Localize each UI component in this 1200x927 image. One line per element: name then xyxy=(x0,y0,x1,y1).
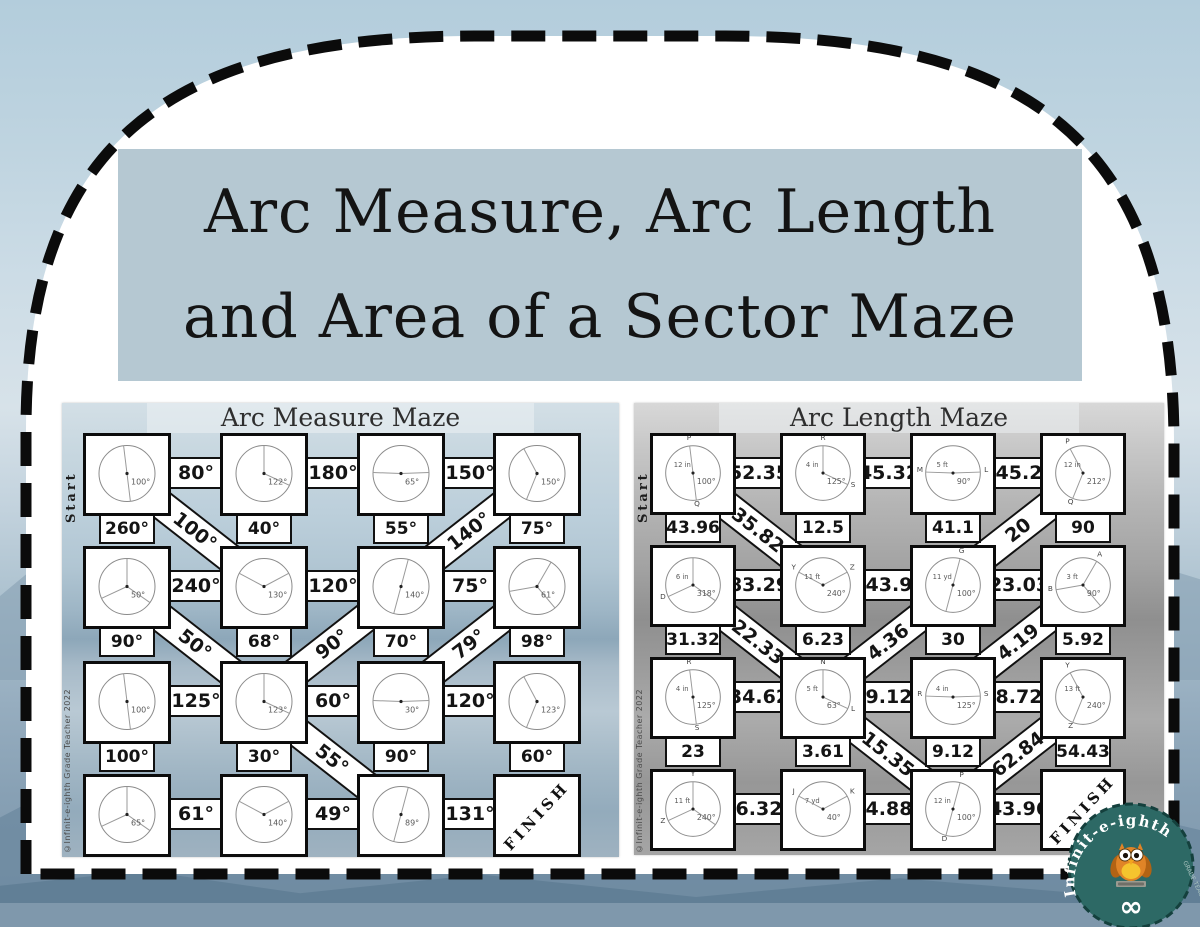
copyright-text: ©Infinit-e-ighth Grade Teacher 2022 xyxy=(63,578,72,853)
circle-diagram: 150° xyxy=(496,436,578,513)
svg-text:240°: 240° xyxy=(697,813,716,822)
product-title-line1: Arc Measure, Arc Length xyxy=(204,160,996,265)
svg-text:Z: Z xyxy=(850,562,855,571)
maze-title: Arc Length Maze xyxy=(634,403,1164,432)
svg-text:150°: 150° xyxy=(541,478,560,487)
start-label: Start xyxy=(64,427,79,523)
circle-problem-box: RS4 in125° xyxy=(910,657,996,739)
vertical-connector: 75° xyxy=(509,514,565,544)
svg-text:S: S xyxy=(851,480,856,489)
circle-diagram: 130° xyxy=(223,549,305,626)
svg-text:M: M xyxy=(917,465,923,474)
arc-length-maze-sheet: Arc Length Maze Start ©Infinit-e-ighth G… xyxy=(634,403,1164,855)
product-title-box: Arc Measure, Arc Length and Area of a Se… xyxy=(118,149,1082,381)
svg-text:R: R xyxy=(686,660,691,666)
svg-text:90°: 90° xyxy=(957,477,971,486)
horizontal-connector: 240° xyxy=(167,570,225,602)
svg-text:A: A xyxy=(1097,549,1102,558)
vertical-connector: 31.32 xyxy=(665,625,721,655)
circle-problem-box: ML5 ft90° xyxy=(910,433,996,515)
svg-text:3 ft: 3 ft xyxy=(1067,573,1079,581)
vertical-connector: 30° xyxy=(236,742,292,772)
circle-problem-box: PQ12 in100° xyxy=(650,433,736,515)
svg-text:5 ft: 5 ft xyxy=(807,685,819,693)
svg-text:D: D xyxy=(660,592,666,601)
circle-diagram: 65° xyxy=(86,777,168,854)
vertical-connector: 70° xyxy=(373,627,429,657)
horizontal-connector: 34.62 xyxy=(732,681,786,713)
circle-diagram: YZ11 ft240° xyxy=(653,772,733,848)
horizontal-connector: 120° xyxy=(304,570,362,602)
circle-problem-box: 100° xyxy=(83,433,171,516)
svg-text:61°: 61° xyxy=(541,591,555,600)
vertical-connector: 40° xyxy=(236,514,292,544)
svg-text:11 ft: 11 ft xyxy=(674,797,690,805)
vertical-connector: 12.5 xyxy=(795,513,851,543)
circle-diagram: NL5 ft63° xyxy=(783,660,863,736)
svg-text:S: S xyxy=(984,689,989,698)
circle-diagram: ML5 ft90° xyxy=(913,436,993,512)
svg-text:90°: 90° xyxy=(1087,589,1101,598)
svg-text:40°: 40° xyxy=(827,813,841,822)
circle-diagram: PD12 in100° xyxy=(913,772,993,848)
infinity-symbol: ∞ xyxy=(1119,890,1142,923)
circle-problem-box: RS4 in125° xyxy=(780,433,866,515)
svg-text:11 ft: 11 ft xyxy=(804,573,820,581)
svg-text:13 ft: 13 ft xyxy=(1064,685,1080,693)
svg-text:50°: 50° xyxy=(131,591,145,600)
circle-problem-box: PQ12 in212° xyxy=(1040,433,1126,515)
svg-text:240°: 240° xyxy=(827,589,846,598)
circle-problem-box: 123° xyxy=(220,661,308,744)
svg-text:89°: 89° xyxy=(405,819,419,828)
svg-text:4 in: 4 in xyxy=(936,685,949,693)
horizontal-connector: 8.72 xyxy=(992,681,1046,713)
circle-problem-box: 130° xyxy=(220,546,308,629)
circle-diagram: RS4 in125° xyxy=(653,660,733,736)
copyright-text: ©Infinit-e-ighth Grade Teacher 2022 xyxy=(635,578,644,853)
svg-text:100°: 100° xyxy=(131,706,150,715)
svg-text:240°: 240° xyxy=(1087,701,1106,710)
horizontal-connector: 45.2 xyxy=(992,457,1046,489)
svg-text:65°: 65° xyxy=(131,819,145,828)
circle-diagram: G11 yd100° xyxy=(913,548,993,624)
svg-text:140°: 140° xyxy=(268,819,287,828)
circle-diagram: 89° xyxy=(360,777,442,854)
circle-problem-box: YZ11 ft240° xyxy=(650,769,736,851)
svg-text:J: J xyxy=(792,786,795,795)
svg-text:P: P xyxy=(687,436,692,442)
horizontal-connector: 43.96 xyxy=(992,793,1046,825)
svg-text:100°: 100° xyxy=(957,589,976,598)
circle-diagram: 100° xyxy=(86,664,168,741)
svg-text:140°: 140° xyxy=(405,591,424,600)
horizontal-connector: 75° xyxy=(441,570,499,602)
horizontal-connector: 43.9 xyxy=(862,569,916,601)
svg-text:318°: 318° xyxy=(697,589,716,598)
vertical-connector: 55° xyxy=(373,514,429,544)
circle-diagram: 140° xyxy=(360,549,442,626)
circle-problem-box: JK7 yd40° xyxy=(780,769,866,851)
circle-diagram: 123° xyxy=(496,664,578,741)
circle-problem-box: YZ11 ft240° xyxy=(780,545,866,627)
svg-text:100°: 100° xyxy=(131,478,150,487)
circle-problem-box: 61° xyxy=(493,546,581,629)
svg-text:Z: Z xyxy=(660,816,665,825)
vertical-connector: 100° xyxy=(99,742,155,772)
vertical-connector: 90° xyxy=(99,627,155,657)
circle-diagram: PQ12 in100° xyxy=(653,436,733,512)
circle-problem-box: 30° xyxy=(357,661,445,744)
svg-text:125°: 125° xyxy=(697,701,716,710)
circle-problem-box: PD12 in100° xyxy=(910,769,996,851)
horizontal-connector: 131° xyxy=(441,798,499,830)
svg-text:30°: 30° xyxy=(405,706,419,715)
circle-problem-box: YZ13 ft240° xyxy=(1040,657,1126,739)
horizontal-connector: 9.12 xyxy=(862,681,916,713)
horizontal-connector: 6.32 xyxy=(732,793,786,825)
circle-diagram: 61° xyxy=(496,549,578,626)
vertical-connector: 9.12 xyxy=(925,737,981,767)
circle-problem-box: 140° xyxy=(220,774,308,857)
svg-text:R: R xyxy=(820,436,825,442)
svg-text:6 in: 6 in xyxy=(676,573,689,581)
circle-problem-box: 123° xyxy=(493,661,581,744)
circle-problem-box: AB3 ft90° xyxy=(1040,545,1126,627)
svg-text:212°: 212° xyxy=(1087,477,1106,486)
horizontal-connector: 80° xyxy=(167,457,225,489)
svg-text:Y: Y xyxy=(1064,661,1070,670)
brand-logo: Infinit-e-ighth GRADE TEACHER ∞ xyxy=(1062,800,1200,927)
horizontal-connector: 23.03 xyxy=(992,569,1046,601)
circle-diagram: 100° xyxy=(86,436,168,513)
svg-text:12 in: 12 in xyxy=(674,461,691,469)
svg-text:Y: Y xyxy=(690,772,696,778)
vertical-connector: 98° xyxy=(509,627,565,657)
horizontal-connector: 83.29 xyxy=(732,569,786,601)
start-label: Start xyxy=(636,427,651,523)
vertical-connector: 68° xyxy=(236,627,292,657)
circle-problem-box: NL5 ft63° xyxy=(780,657,866,739)
finish-box: FINISH xyxy=(493,774,581,857)
svg-text:Y: Y xyxy=(790,562,796,571)
svg-text:4 in: 4 in xyxy=(806,461,819,469)
horizontal-connector: 4.88 xyxy=(862,793,916,825)
svg-text:P: P xyxy=(1065,437,1070,446)
circle-diagram: 140° xyxy=(223,777,305,854)
svg-text:7 yd: 7 yd xyxy=(805,797,820,805)
arc-length-maze-grid: 35.822022.334.364.1915.3562.8443.9612.54… xyxy=(634,403,1164,855)
vertical-connector: 41.1 xyxy=(925,513,981,543)
horizontal-connector: 120° xyxy=(441,685,499,717)
circle-problem-box: 65° xyxy=(357,433,445,516)
svg-text:130°: 130° xyxy=(268,591,287,600)
circle-problem-box: 122° xyxy=(220,433,308,516)
svg-text:100°: 100° xyxy=(697,477,716,486)
svg-text:N: N xyxy=(820,660,825,666)
circle-problem-box: D6 in318° xyxy=(650,545,736,627)
circle-problem-box: G11 yd100° xyxy=(910,545,996,627)
svg-text:65°: 65° xyxy=(405,478,419,487)
svg-text:Q: Q xyxy=(1068,497,1074,506)
svg-text:4 in: 4 in xyxy=(676,685,689,693)
svg-text:123°: 123° xyxy=(541,706,560,715)
circle-problem-box: 140° xyxy=(357,546,445,629)
vertical-connector: 23 xyxy=(665,737,721,767)
svg-text:123°: 123° xyxy=(268,706,287,715)
svg-text:K: K xyxy=(850,786,855,795)
vertical-connector: 30 xyxy=(925,625,981,655)
vertical-connector: 260° xyxy=(99,514,155,544)
vertical-connector: 6.23 xyxy=(795,625,851,655)
circle-problem-box: RS4 in125° xyxy=(650,657,736,739)
svg-text:L: L xyxy=(851,704,856,713)
svg-text:Z: Z xyxy=(1068,721,1073,730)
circle-diagram: RS4 in125° xyxy=(783,436,863,512)
circle-diagram: YZ13 ft240° xyxy=(1043,660,1123,736)
horizontal-connector: 52.35 xyxy=(732,457,786,489)
horizontal-connector: 60° xyxy=(304,685,362,717)
svg-text:G: G xyxy=(959,548,965,555)
svg-text:12 in: 12 in xyxy=(934,797,951,805)
vertical-connector: 43.96 xyxy=(665,513,721,543)
maze-title: Arc Measure Maze xyxy=(62,403,619,432)
horizontal-connector: 125° xyxy=(167,685,225,717)
circle-diagram: 123° xyxy=(223,664,305,741)
vertical-connector: 90° xyxy=(373,742,429,772)
circle-diagram: PQ12 in212° xyxy=(1043,436,1123,512)
circle-problem-box: 100° xyxy=(83,661,171,744)
svg-text:125°: 125° xyxy=(827,477,846,486)
circle-diagram: YZ11 ft240° xyxy=(783,548,863,624)
svg-text:125°: 125° xyxy=(957,701,976,710)
circle-diagram: 65° xyxy=(360,436,442,513)
svg-text:122°: 122° xyxy=(268,478,287,487)
circle-problem-box: 150° xyxy=(493,433,581,516)
vertical-connector: 60° xyxy=(509,742,565,772)
svg-text:B: B xyxy=(1048,584,1053,593)
circle-diagram: 50° xyxy=(86,549,168,626)
finish-label: FINISH xyxy=(501,777,574,853)
product-preview-page: Arc Measure, Arc Length and Area of a Se… xyxy=(0,0,1200,927)
vertical-connector: 90 xyxy=(1055,513,1111,543)
circle-diagram: 122° xyxy=(223,436,305,513)
svg-text:63°: 63° xyxy=(827,701,841,710)
vertical-connector: 5.92 xyxy=(1055,625,1111,655)
circle-problem-box: 89° xyxy=(357,774,445,857)
horizontal-connector: 45.32 xyxy=(862,457,916,489)
circle-diagram: 30° xyxy=(360,664,442,741)
circle-diagram: RS4 in125° xyxy=(913,660,993,736)
circle-diagram: JK7 yd40° xyxy=(783,772,863,848)
horizontal-connector: 180° xyxy=(304,457,362,489)
arc-measure-maze-grid: 100°140°50°90°79°55°260°40°55°75°90°68°7… xyxy=(62,403,619,857)
circle-problem-box: 50° xyxy=(83,546,171,629)
circle-diagram: AB3 ft90° xyxy=(1043,548,1123,624)
svg-text:R: R xyxy=(917,689,922,698)
circle-diagram: D6 in318° xyxy=(653,548,733,624)
vertical-connector: 54.43 xyxy=(1055,737,1111,767)
svg-text:12 in: 12 in xyxy=(1064,461,1081,469)
svg-text:5 ft: 5 ft xyxy=(937,461,949,469)
horizontal-connector: 61° xyxy=(167,798,225,830)
circle-problem-box: 65° xyxy=(83,774,171,857)
svg-text:D: D xyxy=(942,834,948,843)
svg-text:L: L xyxy=(984,465,989,474)
arc-measure-maze-sheet: Arc Measure Maze Start ©Infinit-e-ighth … xyxy=(62,403,619,857)
svg-text:11 yd: 11 yd xyxy=(933,573,952,581)
vertical-connector: 3.61 xyxy=(795,737,851,767)
svg-text:P: P xyxy=(959,772,964,779)
product-title-line2: and Area of a Sector Maze xyxy=(183,265,1017,370)
svg-text:S: S xyxy=(695,723,700,732)
svg-text:Q: Q xyxy=(694,499,700,508)
horizontal-connector: 49° xyxy=(304,798,362,830)
svg-text:100°: 100° xyxy=(957,813,976,822)
horizontal-connector: 150° xyxy=(441,457,499,489)
